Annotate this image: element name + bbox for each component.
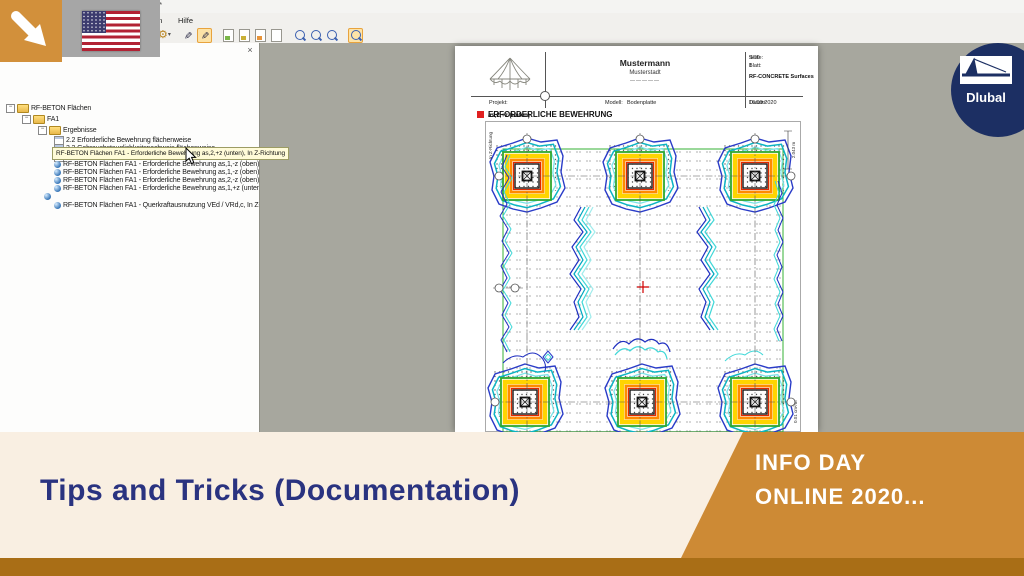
model-label: Modell:: [605, 100, 623, 106]
report-company: Mustermann: [555, 58, 735, 68]
presenter-arrow-logo: [0, 0, 62, 62]
model-value: Bodenplatte: [627, 100, 656, 106]
page-value: 9/10: [749, 55, 760, 61]
header-divider: [745, 52, 746, 108]
graphic-icon: [54, 169, 61, 176]
dimension-label: 2.043 m: [791, 142, 796, 159]
report-blank-icon[interactable]: [270, 29, 283, 42]
tree-item-label: RF-BETON Flächen FA1 - Erforderliche Bew…: [63, 184, 260, 193]
expand-icon[interactable]: −: [22, 115, 31, 124]
reinforcement-plot: 2.043 m In Z-Richtung 0.01 cm²/m: [485, 121, 801, 432]
language-flag-box: [62, 0, 160, 57]
section-title: ERFORDERLICHE BEWEHRUNG as,2,+z (unten): [488, 110, 530, 119]
header-circle-mark: [540, 91, 550, 101]
close-panel-icon[interactable]: ×: [245, 45, 255, 55]
tree-item-ergebnisse[interactable]: − Ergebnisse: [38, 126, 97, 135]
unit-label: 0.01 cm²/m: [793, 400, 798, 423]
us-flag-icon: [82, 11, 140, 51]
event-line1: INFO DAY: [755, 450, 866, 476]
tree-item-graphic[interactable]: RF-BETON Flächen FA1 - Erforderliche Bew…: [54, 184, 260, 193]
event-badge: INFO DAY ONLINE 2020...: [681, 432, 1024, 558]
lower-third-banner: Tips and Tricks (Documentation) INFO DAY…: [0, 432, 1024, 558]
menu-item-hilfe[interactable]: Hilfe: [178, 16, 193, 25]
pointer-pen-icon[interactable]: ✎: [181, 29, 194, 42]
zoom-window-icon[interactable]: [325, 29, 338, 42]
report-open-icon[interactable]: [238, 29, 251, 42]
report-pages-icon[interactable]: [254, 29, 267, 42]
graphic-icon: [54, 202, 61, 209]
tree-item-label: FA1: [47, 115, 59, 124]
report-city: Musterstadt: [555, 70, 735, 76]
tree-item-rf-beton[interactable]: − RF-BETON Flächen: [6, 104, 91, 113]
tree-item-label: Ergebnisse: [63, 126, 97, 135]
section-title-text: ERFORDERLICHE BEWEHRUNG: [488, 110, 612, 119]
banner-title: Tips and Tricks (Documentation): [40, 474, 520, 508]
section-bullet: [477, 111, 484, 118]
banner-bottom-strip: [0, 558, 1024, 576]
tree-item-graphic-selected[interactable]: [44, 192, 51, 201]
zoom-full-icon[interactable]: [348, 28, 363, 43]
dlubal-logo: Dlubal: [948, 42, 1024, 140]
tree-item-graphic[interactable]: RF-BETON Flächen FA1 - Querkraftausnutzu…: [54, 201, 260, 210]
tree-item-tooltip: RF-BETON Flächen FA1 - Erforderliche Bew…: [52, 147, 289, 160]
direction-label: In Z-Richtung: [488, 131, 493, 159]
select-pen-icon[interactable]: ✎: [197, 28, 212, 43]
report-navigator-panel: − RF-BETON Flächen − FA1 − Ergebnisse 2.…: [0, 43, 260, 432]
dlubal-logo-text: Dlubal: [966, 90, 1006, 105]
zoom-out-icon[interactable]: [293, 29, 306, 42]
graphic-icon: [44, 193, 51, 200]
zoom-in-icon[interactable]: [309, 29, 322, 42]
date-value: 16.09.2020: [749, 100, 777, 106]
event-line2: ONLINE 2020...: [755, 484, 926, 510]
report-divider-dashes: ―――――: [555, 78, 735, 84]
mouse-cursor-icon: [185, 147, 197, 165]
folder-icon: [33, 115, 45, 124]
sheet-value: 1: [749, 63, 752, 69]
tree-item-label: RF-BETON Flächen: [31, 104, 91, 113]
graphic-icon: [54, 161, 61, 168]
project-label: Projekt:: [489, 100, 508, 106]
folder-icon: [49, 126, 61, 135]
report-page: Mustermann Musterstadt ――――― Seite: 9/10…: [455, 46, 818, 432]
tree-item-fa1[interactable]: − FA1: [22, 115, 59, 124]
graphic-icon: [54, 177, 61, 184]
report-new-icon[interactable]: [222, 29, 235, 42]
tree-item-label: RF-BETON Flächen FA1 - Querkraftausnutzu…: [63, 201, 260, 210]
expand-icon[interactable]: −: [6, 104, 15, 113]
company-logo-tree: [485, 54, 535, 96]
header-rule: [471, 96, 803, 97]
expand-icon[interactable]: −: [38, 126, 47, 135]
module-name: RF-CONCRETE Surfaces: [749, 74, 814, 80]
folder-icon: [17, 104, 29, 113]
graphic-icon: [54, 185, 61, 192]
